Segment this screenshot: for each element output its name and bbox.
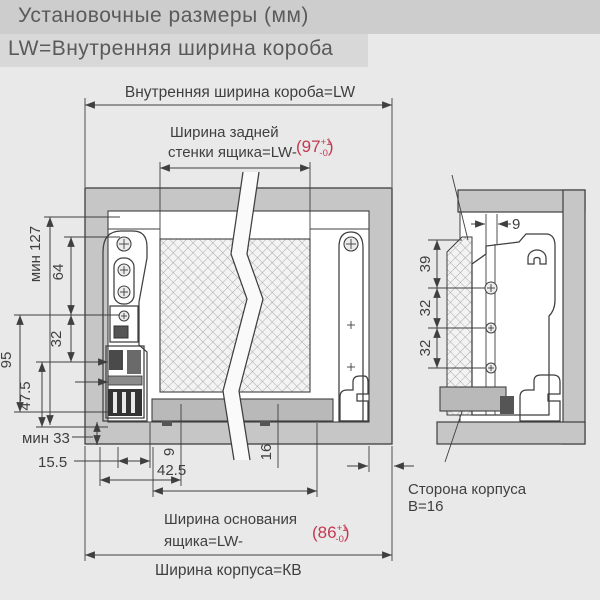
detail-wall-right xyxy=(563,190,585,444)
back-width-label-1: Ширина задней xyxy=(170,124,279,141)
detail-wall-bottom xyxy=(437,422,585,444)
label-16-main: 16 xyxy=(258,444,275,461)
label-42-5: 42.5 xyxy=(157,462,186,479)
back-width-tolerance: (97+1-0) xyxy=(296,137,334,159)
detail-screw-3 xyxy=(486,363,496,373)
side-label-2: B=16 xyxy=(408,498,443,515)
detail-screw-2 xyxy=(486,323,496,333)
detail-screw-1 xyxy=(485,282,497,294)
mech-part-1 xyxy=(109,350,123,370)
panel-tab-1 xyxy=(162,421,172,426)
label-32-top: 32 xyxy=(417,300,434,317)
label-15-5: 15.5 xyxy=(38,454,67,471)
label-9-main: 9 xyxy=(161,448,178,456)
base-width-label-1: Ширина основания xyxy=(164,511,297,528)
label-32-bottom: 32 xyxy=(417,340,434,357)
label-9-detail: 9 xyxy=(512,216,520,233)
base-width-label-2: ящика=LW- xyxy=(164,533,243,550)
screw-top-left xyxy=(117,237,131,251)
back-width-label-2: стенки ящика=LW- xyxy=(168,144,297,161)
label-min33: мин 33 xyxy=(22,430,70,447)
base-width-tolerance: (86+1-0) xyxy=(312,523,350,545)
label-39: 39 xyxy=(417,256,434,273)
mech-comb-slit-3 xyxy=(131,392,135,413)
panel-tab-2 xyxy=(260,421,270,426)
screw-mid-1 xyxy=(118,264,130,276)
side-label-1: Сторона корпуса xyxy=(408,481,527,498)
mech-comb-slit-1 xyxy=(113,392,117,413)
screw-mid-2 xyxy=(118,286,130,298)
page-title: Установочные размеры (мм) xyxy=(18,4,309,28)
mech-comb-slit-2 xyxy=(122,392,126,413)
page-subtitle: LW=Внутренняя ширина короба xyxy=(8,37,333,61)
screw-top-right xyxy=(344,237,358,251)
left-bracket-latch xyxy=(114,326,128,338)
label-47-5: 47.5 xyxy=(17,381,34,410)
label-64: 64 xyxy=(50,264,67,281)
technical-drawing: Внутренняя ширина короба=LW Ширина задне… xyxy=(0,0,600,600)
mech-part-2 xyxy=(127,350,141,374)
detail-bottom-panel xyxy=(440,387,506,411)
lw-dim-label: Внутренняя ширина короба=LW xyxy=(125,84,356,101)
label-95: 95 xyxy=(0,352,15,369)
detail-clamp-dark xyxy=(500,396,514,414)
detail-view: 9 39 32 32 xyxy=(417,175,585,462)
cabinet-width-label: Ширина корпуса=КВ xyxy=(155,562,302,579)
mech-part-3 xyxy=(108,376,142,385)
label-min127: мин 127 xyxy=(27,226,44,282)
label-32-left: 32 xyxy=(48,331,65,348)
screw-lower xyxy=(119,311,129,321)
